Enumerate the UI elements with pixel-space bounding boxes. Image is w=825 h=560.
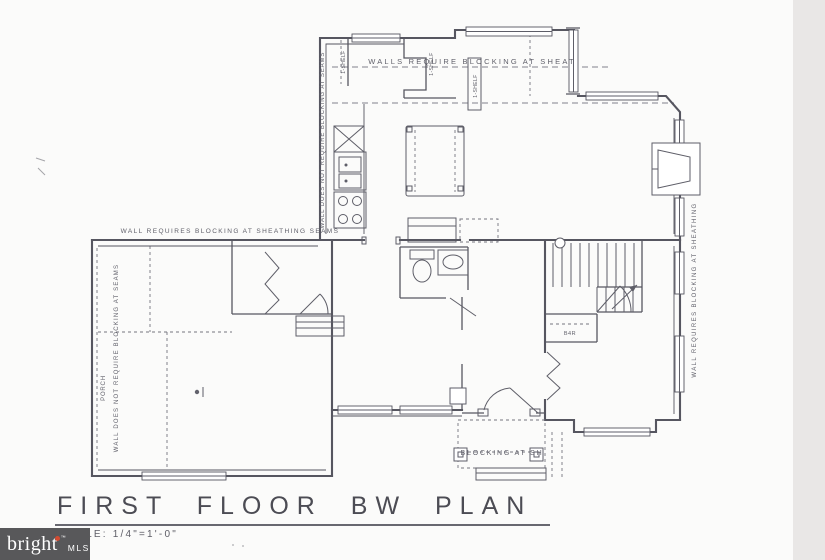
note-blocking-porch: BLOCKING AT SH xyxy=(461,450,544,457)
entry-steps xyxy=(296,316,344,336)
closet-walls xyxy=(232,240,332,314)
cabinet-x-fixture xyxy=(334,126,364,152)
left-wing xyxy=(92,240,344,480)
shelf-label: 1-SHELF xyxy=(341,50,347,73)
staircase xyxy=(553,238,642,312)
door-leaf xyxy=(450,298,476,316)
window xyxy=(675,336,684,392)
note-left-wall: WALL DOES NOT REQUIRE BLOCKING AT SEAMS xyxy=(114,264,120,452)
porch-label: PORCH xyxy=(101,375,107,401)
logo-accent-dot-icon xyxy=(55,536,60,541)
scan-artifacts xyxy=(36,158,244,547)
bifold-door xyxy=(547,352,560,400)
brightmls-wordmark: bright xyxy=(7,534,58,554)
stair-closet xyxy=(545,286,631,342)
window xyxy=(675,252,684,294)
mid-wall xyxy=(92,237,680,246)
door-swing xyxy=(300,294,328,314)
note-kitchen-wall: WALL DOES NOT REQUIRE BLOCKING AT SEAMS xyxy=(320,52,326,229)
closet-label: B4R xyxy=(564,331,576,337)
window xyxy=(338,406,392,414)
sink-vanity-fixture xyxy=(438,250,468,275)
family-room xyxy=(545,240,684,436)
sink-fixture xyxy=(334,152,366,190)
kitchen xyxy=(334,104,498,242)
kitchen-island xyxy=(406,126,464,196)
newel-post xyxy=(555,238,565,248)
window xyxy=(466,27,552,36)
toilet-fixture xyxy=(410,250,434,282)
dining-room xyxy=(332,297,462,416)
note-right-wall: WALL REQUIRES BLOCKING AT SHEATHING xyxy=(692,202,698,377)
kitchen-counter xyxy=(408,218,498,242)
mls-label: MLS xyxy=(68,543,90,553)
brightmls-logo: bright ™ MLS xyxy=(0,528,90,560)
scale-note: SCALE: 1/4"=1'-0" xyxy=(59,529,550,540)
column-post xyxy=(450,388,466,404)
window xyxy=(584,428,650,436)
porch-step xyxy=(476,468,546,480)
window xyxy=(352,34,400,42)
note-wall-blocking-mid: WALL REQUIRES BLOCKING AT SHEATHING SEAM… xyxy=(121,228,340,235)
porch xyxy=(450,388,546,480)
page-title: FIRST FLOOR BW PLAN xyxy=(55,492,550,526)
window xyxy=(400,406,452,414)
center-marker xyxy=(195,387,203,397)
door-swing xyxy=(597,286,631,312)
shelf-label: 1-SHELF xyxy=(473,74,479,97)
floor-plan-drawing: WALLS REQUIRE BLOCKING AT SHEAT WALL REQ… xyxy=(0,0,825,560)
trademark-symbol: ™ xyxy=(61,535,66,541)
title-block: FIRST FLOOR BW PLAN SCALE: 1/4"=1'-0" xyxy=(55,492,550,540)
fireplace xyxy=(652,143,700,195)
bifold-door xyxy=(265,252,279,314)
shelf-label: 1-SHELF xyxy=(429,52,435,75)
powder-room xyxy=(400,247,476,316)
window xyxy=(142,472,226,480)
window xyxy=(586,92,658,100)
window xyxy=(675,198,684,236)
stove-fixture xyxy=(334,192,366,228)
note-walls-blocking-top: WALLS REQUIRE BLOCKING AT SHEAT xyxy=(368,57,576,66)
